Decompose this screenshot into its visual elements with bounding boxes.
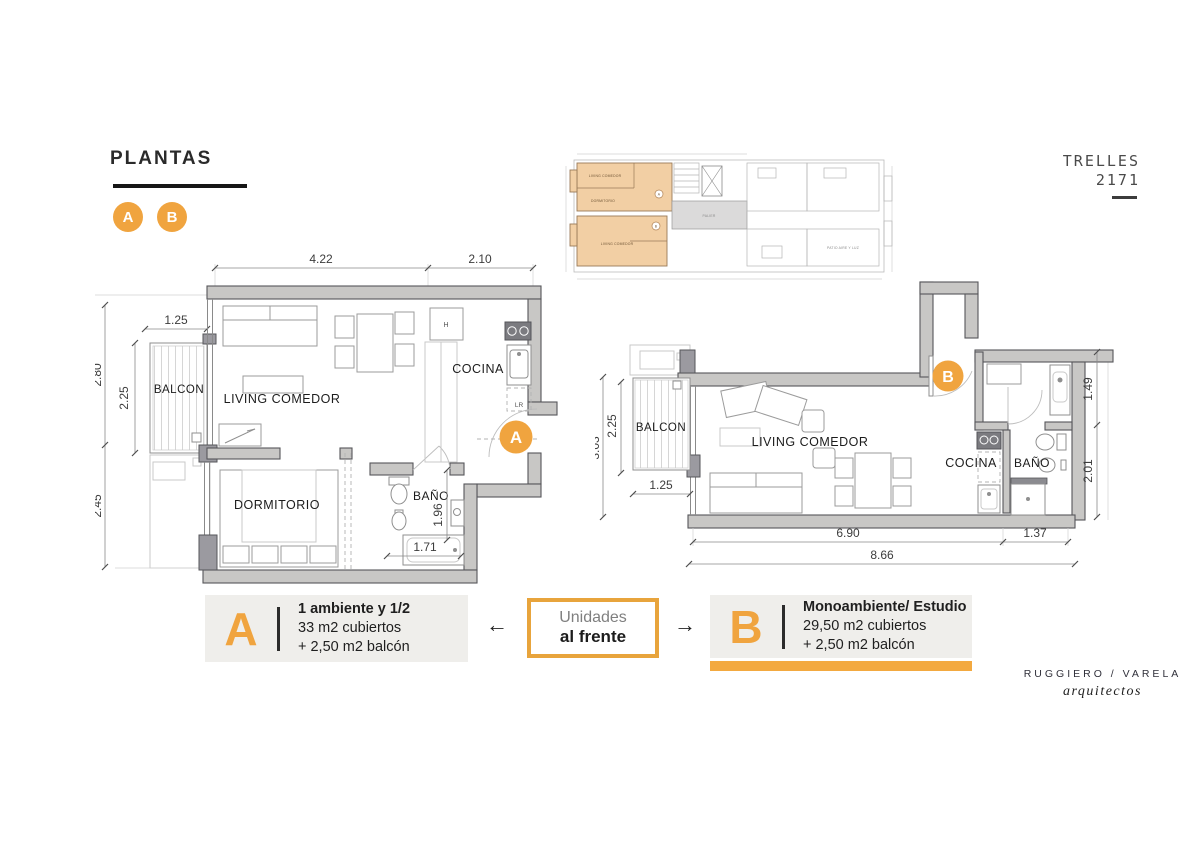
mini-unit-b: LIVING COMEDOR B: [570, 216, 667, 266]
plan-a-bathroom: BAÑO 1.96 1.71: [384, 467, 464, 565]
appliance-a-washer: LR: [515, 402, 524, 409]
legend-center-box: Unidades al frente: [527, 598, 659, 658]
appliance-a-fridge: H: [443, 322, 448, 329]
plan-a-entrance: A: [477, 409, 538, 457]
mini-label-patio: PATIO AIRE Y LUZ: [827, 246, 859, 250]
unit-b-badge: B: [157, 202, 187, 232]
plan-a-bath-door: [413, 446, 450, 470]
plan-a-living-furniture: LIVING COMEDOR: [219, 306, 414, 446]
plan-a-bedroom: DORMITORIO: [220, 470, 338, 567]
room-b-bano: BAÑO: [1014, 456, 1050, 470]
dim-b-bottom-total: 8.66: [870, 548, 894, 562]
dim-a-top-living: 4.22: [309, 252, 333, 266]
firm-subtitle: arquitectos: [1005, 684, 1200, 700]
dim-b-left-total: 3.03: [595, 436, 602, 460]
mini-core: PALIER: [672, 163, 747, 229]
project-number: 2171: [1008, 171, 1140, 190]
project-dash: [1112, 196, 1137, 199]
legend-a-divider: [277, 607, 280, 651]
mini-label-living-a: LIVING COMEDOR: [589, 174, 622, 178]
page-title: PLANTAS: [110, 148, 212, 170]
legend-a-letter: A: [205, 606, 277, 652]
plan-b-marker-letter: B: [942, 369, 954, 386]
legend-b-letter: B: [710, 604, 782, 650]
mini-label-palier: PALIER: [702, 214, 715, 218]
room-b-cocina: COCINA: [945, 456, 997, 470]
room-b-living: LIVING COMEDOR: [752, 435, 869, 449]
mini-other-units: PATIO AIRE Y LUZ: [747, 163, 892, 266]
plan-b-balcony: BALCON: [633, 378, 690, 470]
plan-b-bathroom: BAÑO: [1008, 365, 1070, 515]
plan-b-drawing: B BALCON LIVING COMEDOR: [595, 268, 1120, 588]
room-a-bano: BAÑO: [413, 489, 449, 503]
legend-b-divider: [782, 605, 785, 649]
legend-b-title: Monoambiente/ Estudio: [803, 598, 967, 617]
plan-sheet: PLANTAS A B TRELLES 2171 LIVING COMEDOR …: [0, 0, 1200, 847]
title-underline: [113, 184, 247, 188]
mini-label-living-b: LIVING COMEDOR: [601, 242, 634, 246]
dim-a-bano-width: 1.71: [413, 540, 437, 554]
legend-b-line1: 29,50 m2 cubiertos: [803, 617, 967, 636]
legend-a-line2: + 2,50 m2 balcón: [298, 638, 410, 657]
dim-b-balcon-depth: 2.25: [605, 414, 619, 438]
arrow-right-icon: →: [672, 612, 698, 638]
plan-a-marker-letter: A: [510, 428, 522, 447]
plan-b-living-furniture: LIVING COMEDOR: [710, 382, 911, 513]
legend-b-accent-bar: [710, 661, 972, 671]
room-b-balcon: BALCON: [636, 422, 686, 434]
plan-a-drawing: 4.22 2.10 2.80 2.45 2.25 1.25 BALCON: [95, 248, 570, 593]
plan-b-dims-bottom: 6.90 1.37 8.66: [686, 526, 1078, 567]
dim-a-balcon-depth: 2.25: [117, 386, 131, 410]
project-block: TRELLES 2171: [1008, 152, 1140, 199]
dim-a-balcon-width: 1.25: [164, 313, 188, 327]
plan-a-balcony: BALCON: [150, 343, 207, 453]
mini-unit-a: LIVING COMEDOR DORMITORIO A: [570, 163, 672, 211]
room-a-living: LIVING COMEDOR: [224, 392, 341, 406]
room-a-balcon: BALCON: [154, 384, 204, 396]
mini-label-dormitorio: DORMITORIO: [591, 199, 615, 203]
dim-b-right-upper: 1.49: [1081, 377, 1095, 401]
legend-b-line2: + 2,50 m2 balcón: [803, 636, 967, 655]
plan-a-dims-top: 4.22 2.10: [212, 252, 536, 286]
dim-a-bano-depth: 1.96: [431, 503, 445, 527]
dim-b-bottom-living: 6.90: [836, 526, 860, 540]
unit-badges: A B: [113, 202, 187, 232]
dim-b-right-lower: 2.01: [1081, 459, 1095, 483]
arrow-left-icon: ←: [484, 612, 510, 638]
floor-overview-mini-plan: LIVING COMEDOR DORMITORIO A LIVING COMED…: [562, 146, 897, 288]
legend-a-title: 1 ambiente y 1/2: [298, 600, 410, 619]
project-name: TRELLES: [1008, 152, 1140, 171]
firm-name: RUGGIERO / VARELA: [1005, 668, 1200, 680]
dim-a-left-upper: 2.80: [95, 363, 104, 387]
dim-b-balcon-width: 1.25: [649, 478, 673, 492]
dim-a-left-lower: 2.45: [95, 494, 104, 518]
dim-b-bottom-service: 1.37: [1023, 526, 1047, 540]
legend-a-line1: 33 m2 cubiertos: [298, 619, 410, 638]
room-a-dormitorio: DORMITORIO: [234, 498, 320, 512]
room-a-cocina: COCINA: [452, 362, 504, 376]
unit-a-badge: A: [113, 202, 143, 232]
legend-center-line1: Unidades: [559, 609, 627, 627]
legend-center-line2: al frente: [560, 627, 626, 647]
legend-unit-b: B Monoambiente/ Estudio 29,50 m2 cubiert…: [710, 595, 972, 658]
plan-b-entrance: B: [929, 356, 972, 396]
dim-a-top-cocina: 2.10: [468, 252, 492, 266]
legend-unit-a: A 1 ambiente y 1/2 33 m2 cubiertos + 2,5…: [205, 595, 468, 662]
